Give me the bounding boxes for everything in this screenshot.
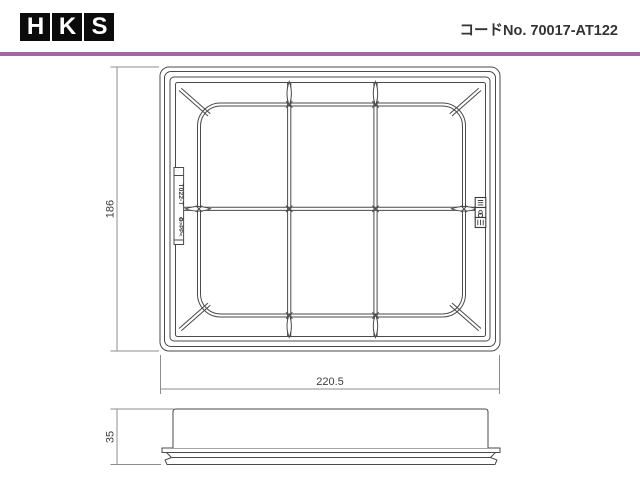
dimension-width: 220.5 [161,355,500,394]
side-neck [167,453,496,458]
page: H K S コードNo. 70017-AT122 [0,0,640,480]
technical-drawing: T022-T ♻>PP< 186 220.5 [0,0,640,480]
side-height-dim-label: 35 [105,431,117,443]
mold-stamp [475,198,486,228]
side-view [162,409,500,465]
part-number-text: T022-T [177,184,184,207]
top-view: T022-T ♻>PP< [160,67,500,351]
part-label-tab: T022-T ♻>PP< [174,168,184,245]
material-code-text: ♻>PP< [177,217,184,237]
side-seal-bead [165,458,497,465]
height-dim-label: 186 [105,200,117,218]
dimension-side-height: 35 [105,409,175,465]
side-body [173,409,488,448]
dimension-height: 186 [105,67,160,351]
width-dim-label: 220.5 [316,376,344,388]
side-flange [162,448,500,453]
